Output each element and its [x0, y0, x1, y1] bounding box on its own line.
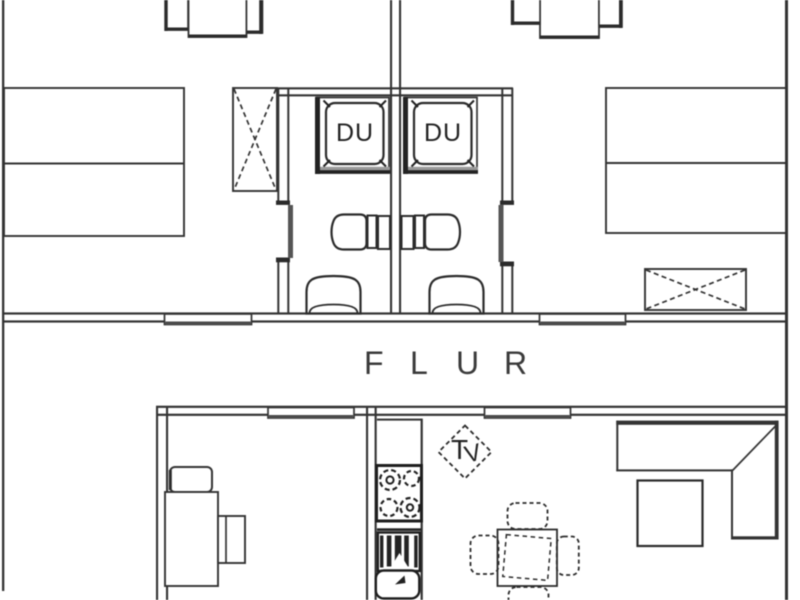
- svg-text:U: U: [456, 345, 479, 381]
- svg-text:DU: DU: [424, 119, 462, 147]
- svg-text:L: L: [410, 345, 428, 381]
- svg-text:F: F: [364, 345, 384, 381]
- svg-text:R: R: [504, 345, 527, 381]
- svg-text:DU: DU: [336, 119, 374, 147]
